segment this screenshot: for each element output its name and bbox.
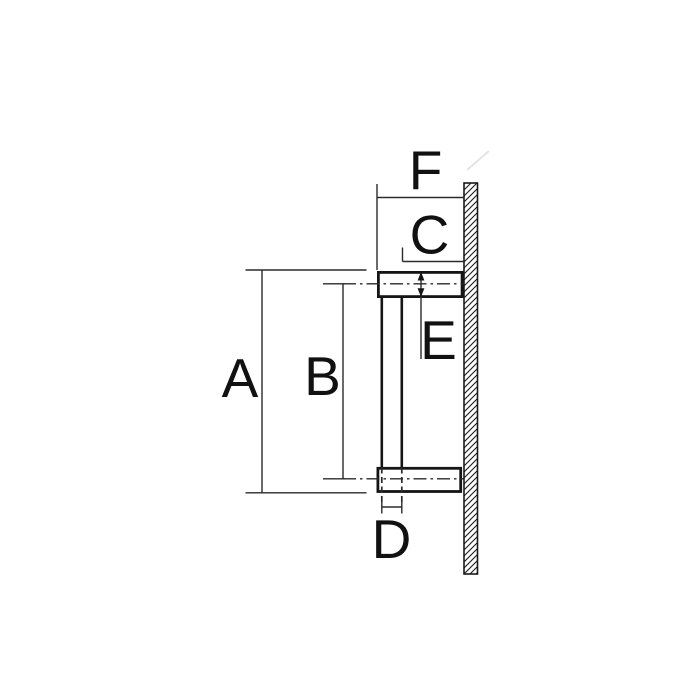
dimension-label-d: D xyxy=(372,508,412,570)
dimension-label-e: E xyxy=(420,309,457,371)
faint-artifact-line xyxy=(467,151,489,170)
dimension-d: D xyxy=(372,501,412,571)
wall-panel-hatched xyxy=(464,183,478,574)
dimension-label-b: B xyxy=(304,345,341,407)
pull-handle-dimension-diagram: F C A xyxy=(0,0,700,700)
dimension-label-f: F xyxy=(409,140,443,202)
dimension-c: C xyxy=(403,204,464,266)
dimension-label-a: A xyxy=(222,347,259,409)
bottom-standoff xyxy=(378,468,461,491)
dimension-label-c: C xyxy=(410,204,450,266)
technical-drawing-page: F C A xyxy=(0,0,700,700)
handle-grip-tube xyxy=(382,297,402,468)
dimension-b: B xyxy=(304,284,345,479)
dimension-a: A xyxy=(222,270,367,493)
